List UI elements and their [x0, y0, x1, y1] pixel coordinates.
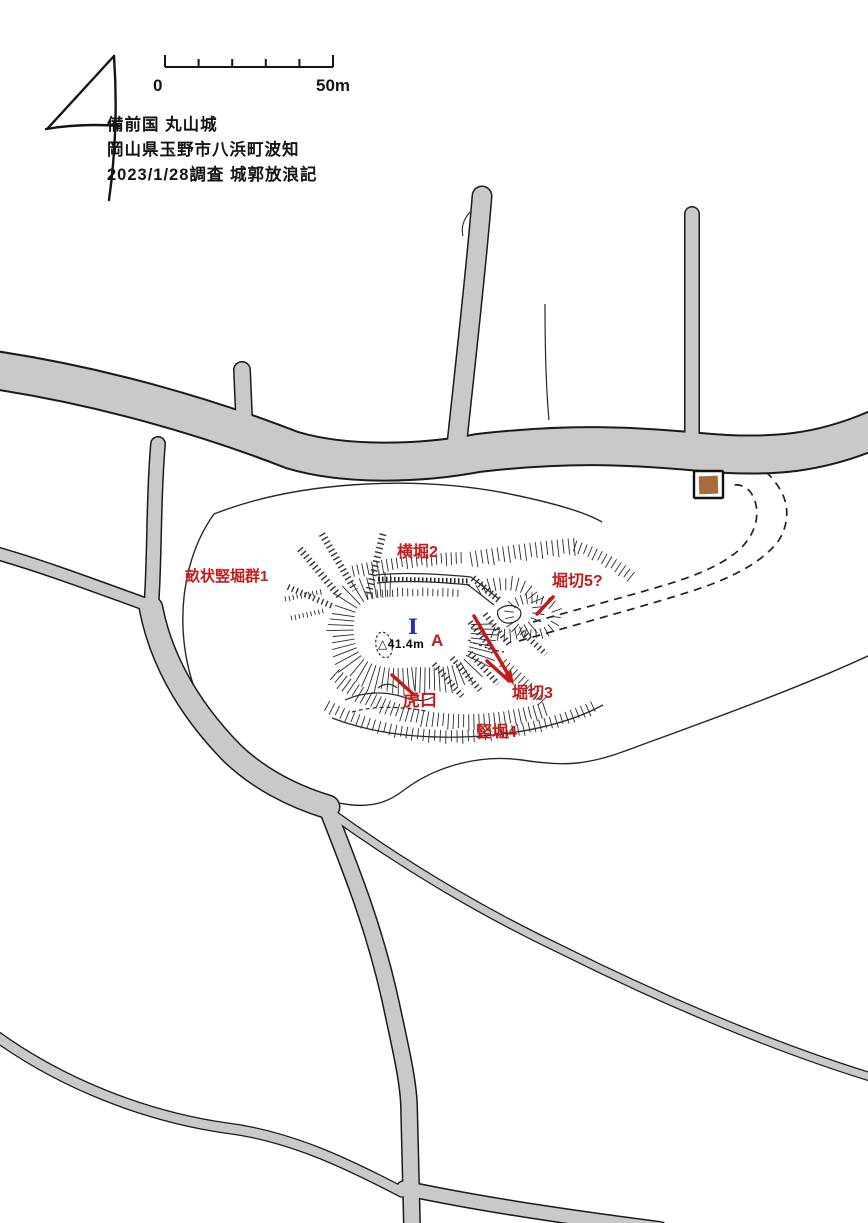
- yokobori-edge: [377, 582, 470, 585]
- tatebori-strip: [288, 587, 332, 606]
- marker-point-a: A: [431, 632, 443, 650]
- castle-name: 備前国 丸山城: [107, 113, 318, 138]
- label-unejo-tatebori-gun1: 畝状竪堀群1: [185, 569, 268, 585]
- yokobori-trench-fill: [378, 579, 470, 581]
- label-horikiri5: 堀切5?: [552, 574, 603, 591]
- trail-outer-line: [519, 464, 787, 641]
- scale-bar: [165, 55, 333, 67]
- stream-line: [545, 304, 549, 420]
- trail-inner-line: [533, 485, 757, 622]
- castle-earthworks: [283, 534, 638, 744]
- se-tatebori-band: [452, 658, 480, 690]
- label-koguchi: 虎口: [403, 692, 437, 710]
- marker-main-enclosure: I: [408, 616, 418, 638]
- label-horikiri3: 堀切3: [512, 686, 553, 703]
- castle-map-page: 0 50m 備前国 丸山城 岡山県玉野市八浜町波知 2023/1/28調査 城郭…: [0, 0, 868, 1223]
- inner-blob: [498, 606, 521, 624]
- dashed-trail: [519, 464, 787, 641]
- trench-edge: [471, 577, 499, 599]
- building-marker: [694, 471, 723, 498]
- scale-end-label: 50m: [316, 76, 350, 96]
- scale-zero-label: 0: [153, 76, 162, 96]
- contour-west-south: [183, 514, 868, 805]
- slope-foot-line: [332, 705, 603, 737]
- tatebori-strip: [368, 534, 383, 595]
- label-tatebori4: 竪堀4: [476, 725, 517, 742]
- marker-elevation: △41.4m: [378, 638, 424, 651]
- knoll-band: [522, 632, 546, 654]
- castle-address: 岡山県玉野市八浜町波知: [107, 138, 318, 163]
- contour-north: [214, 483, 602, 522]
- label-yokobori2: 横堀2: [397, 545, 438, 562]
- map-title-block: 備前国 丸山城 岡山県玉野市八浜町波知 2023/1/28調査 城郭放浪記: [107, 113, 318, 188]
- survey-credit: 2023/1/28調査 城郭放浪記: [107, 163, 318, 188]
